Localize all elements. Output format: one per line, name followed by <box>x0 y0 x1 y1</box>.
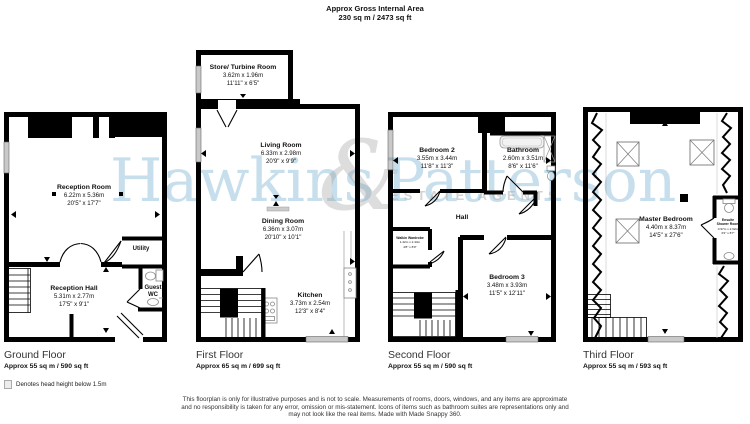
legend-text: Denotes head height below 1.5m <box>16 381 106 388</box>
disclaimer: This floorplan is only for illustrative … <box>0 396 750 419</box>
room-dims-imperial: 4'8" x 8'0" <box>396 245 423 249</box>
room-dims-metric: 3.48m x 3.93m <box>487 282 527 290</box>
room-label-reception-room: Reception Room 6.22m x 5.36m 20'5" x 17'… <box>57 184 111 207</box>
floor-area: Approx 65 sq m / 699 sq ft <box>196 363 280 370</box>
room-label-reception-hall: Reception Hall 5.31m x 2.77m 17'5" x 9'1… <box>50 285 97 308</box>
interior-wall <box>198 269 240 276</box>
head-height-swatch-icon <box>4 380 12 389</box>
floor-title-first: First Floor Approx 65 sq m / 699 sq ft <box>196 349 280 370</box>
step <box>267 207 289 211</box>
room-name: Hall <box>456 214 468 222</box>
room-dims-metric: 5.31m x 2.77m <box>50 293 97 301</box>
floor-name: Second Floor <box>388 349 472 361</box>
floor-title-second: Second Floor Approx 55 sq m / 590 sq ft <box>388 349 472 370</box>
room-dims-imperial: 20'9" x 9'9" <box>260 158 301 166</box>
floorplan-page: Hawkins & Patterson ESTATE AGENTS Approx… <box>0 0 750 424</box>
window-marker <box>388 130 393 170</box>
room-dims-metric: 6.22m x 5.36m <box>57 192 111 200</box>
head-height-legend: Denotes head height below 1.5m <box>4 380 106 389</box>
room-label-store-turbine-room: Store/ Turbine Room 3.62m x 1.96m 11'11"… <box>210 64 277 87</box>
floor-title-third: Third Floor Approx 55 sq m / 593 sq ft <box>583 349 667 370</box>
room-label-bedroom-3: Bedroom 3 3.48m x 3.93m 11'5" x 12'11" <box>487 274 527 297</box>
room-dims-metric: 3.73m x 2.54m <box>290 300 330 308</box>
floor-name: First Floor <box>196 349 280 361</box>
room-dims-metric: 1.42m x 2.44m <box>396 240 423 244</box>
room-label-bathroom: Bathroom 2.60m x 3.51m 8'6" x 11'6" <box>503 147 543 170</box>
room-name: Utility <box>133 246 150 253</box>
room-dims-metric: 6.33m x 2.98m <box>260 150 301 158</box>
floor-area: Approx 55 sq m / 590 sq ft <box>388 363 472 370</box>
room-name: Reception Hall <box>50 285 97 293</box>
room-label-utility: Utility <box>133 246 150 253</box>
room-dims-imperial: 12'3" x 8'4" <box>290 308 330 316</box>
floor-title-ground: Ground Floor Approx 55 sq m / 590 sq ft <box>4 349 88 370</box>
sink-icon <box>724 253 734 260</box>
ground-floor-plan <box>4 114 165 343</box>
room-dims-metric: 6.36m x 3.07m <box>262 226 304 234</box>
room-name: Living Room <box>260 142 301 150</box>
room-name: Guest WC <box>139 285 167 299</box>
floor-name: Ground Floor <box>4 349 88 361</box>
room-dims-imperial: 14'5" x 27'6" <box>639 232 693 240</box>
disclaimer-line: and no responsibility is taken for any e… <box>0 404 750 412</box>
room-name: Reception Room <box>57 184 111 192</box>
room-name: Master Bedroom <box>639 216 693 224</box>
room-dims-imperial: 11'11" x 6'5" <box>210 80 277 88</box>
room-label-ensuite: Ensuite Shower Room 0.97m x 2.62m 3'2" x… <box>717 218 740 235</box>
window-marker <box>506 337 538 343</box>
room-dims-metric: 3.62m x 1.96m <box>210 72 277 80</box>
floor-name: Third Floor <box>583 349 667 361</box>
room-label-bedroom-2: Bedroom 2 3.55m x 3.44m 11'8" x 11'3" <box>417 147 457 170</box>
window-marker <box>196 128 201 162</box>
room-label-walkin-wardrobe: Walkin Wardrobe 1.42m x 2.44m 4'8" x 8'0… <box>396 236 423 249</box>
room-name: Bathroom <box>503 147 543 155</box>
toilet-icon <box>547 166 555 181</box>
window-marker <box>4 142 9 173</box>
window-marker <box>306 337 348 343</box>
oven-icon <box>344 268 356 298</box>
toilet-icon <box>723 199 735 213</box>
disclaimer-line: may not look like the real items. Made w… <box>0 411 750 419</box>
room-label-master-bedroom: Master Bedroom 4.40m x 8.37m 14'5" x 27'… <box>639 216 693 239</box>
room-label-dining-room: Dining Room 6.36m x 3.07m 20'10" x 10'1" <box>262 218 304 241</box>
room-dims-imperial: 20'5" x 17'7" <box>57 200 111 208</box>
room-name: Dining Room <box>262 218 304 226</box>
window-marker <box>196 66 201 93</box>
room-dims-imperial: 17'5" x 9'1" <box>50 301 97 309</box>
window-marker <box>648 337 684 343</box>
room-dims-metric: 3.55m x 3.44m <box>417 155 457 163</box>
room-label-living-room: Living Room 6.33m x 2.98m 20'9" x 9'9" <box>260 142 301 165</box>
room-label-hall: Hall <box>456 214 468 222</box>
room-name: Store/ Turbine Room <box>210 64 277 72</box>
floor-area: Approx 55 sq m / 593 sq ft <box>583 363 667 370</box>
room-dims-metric: 2.60m x 3.51m <box>503 155 543 163</box>
room-dims-imperial: 11'5" x 12'11" <box>487 290 527 298</box>
wall-projections <box>196 99 300 109</box>
room-dims-imperial: 20'10" x 10'1" <box>262 234 304 242</box>
room-name: Kitchen <box>290 292 330 300</box>
room-name: Bedroom 2 <box>417 147 457 155</box>
room-dims-imperial: 3'2" x 8'7" <box>717 231 740 235</box>
first-floor-plan <box>196 53 358 343</box>
chimney-marker <box>680 194 688 202</box>
room-name: Bedroom 3 <box>487 274 527 282</box>
interior-wall <box>236 256 243 276</box>
gross-area-value: 230 sq m / 2473 sq ft <box>0 13 750 22</box>
room-dims-imperial: 8'6" x 11'6" <box>503 163 543 171</box>
gross-area-header: Approx Gross Internal Area 230 sq m / 24… <box>0 4 750 22</box>
room-label-kitchen: Kitchen 3.73m x 2.54m 12'3" x 8'4" <box>290 292 330 315</box>
room-label-guest-wc: Guest WC <box>139 285 167 299</box>
disclaimer-line: This floorplan is only for illustrative … <box>0 396 750 404</box>
wall-projections <box>478 112 505 133</box>
gross-area-title: Approx Gross Internal Area <box>0 4 750 13</box>
room-dims-imperial: 11'8" x 11'3" <box>417 163 457 171</box>
room-dims-metric: 4.40m x 8.37m <box>639 224 693 232</box>
floor-area: Approx 55 sq m / 590 sq ft <box>4 363 88 370</box>
